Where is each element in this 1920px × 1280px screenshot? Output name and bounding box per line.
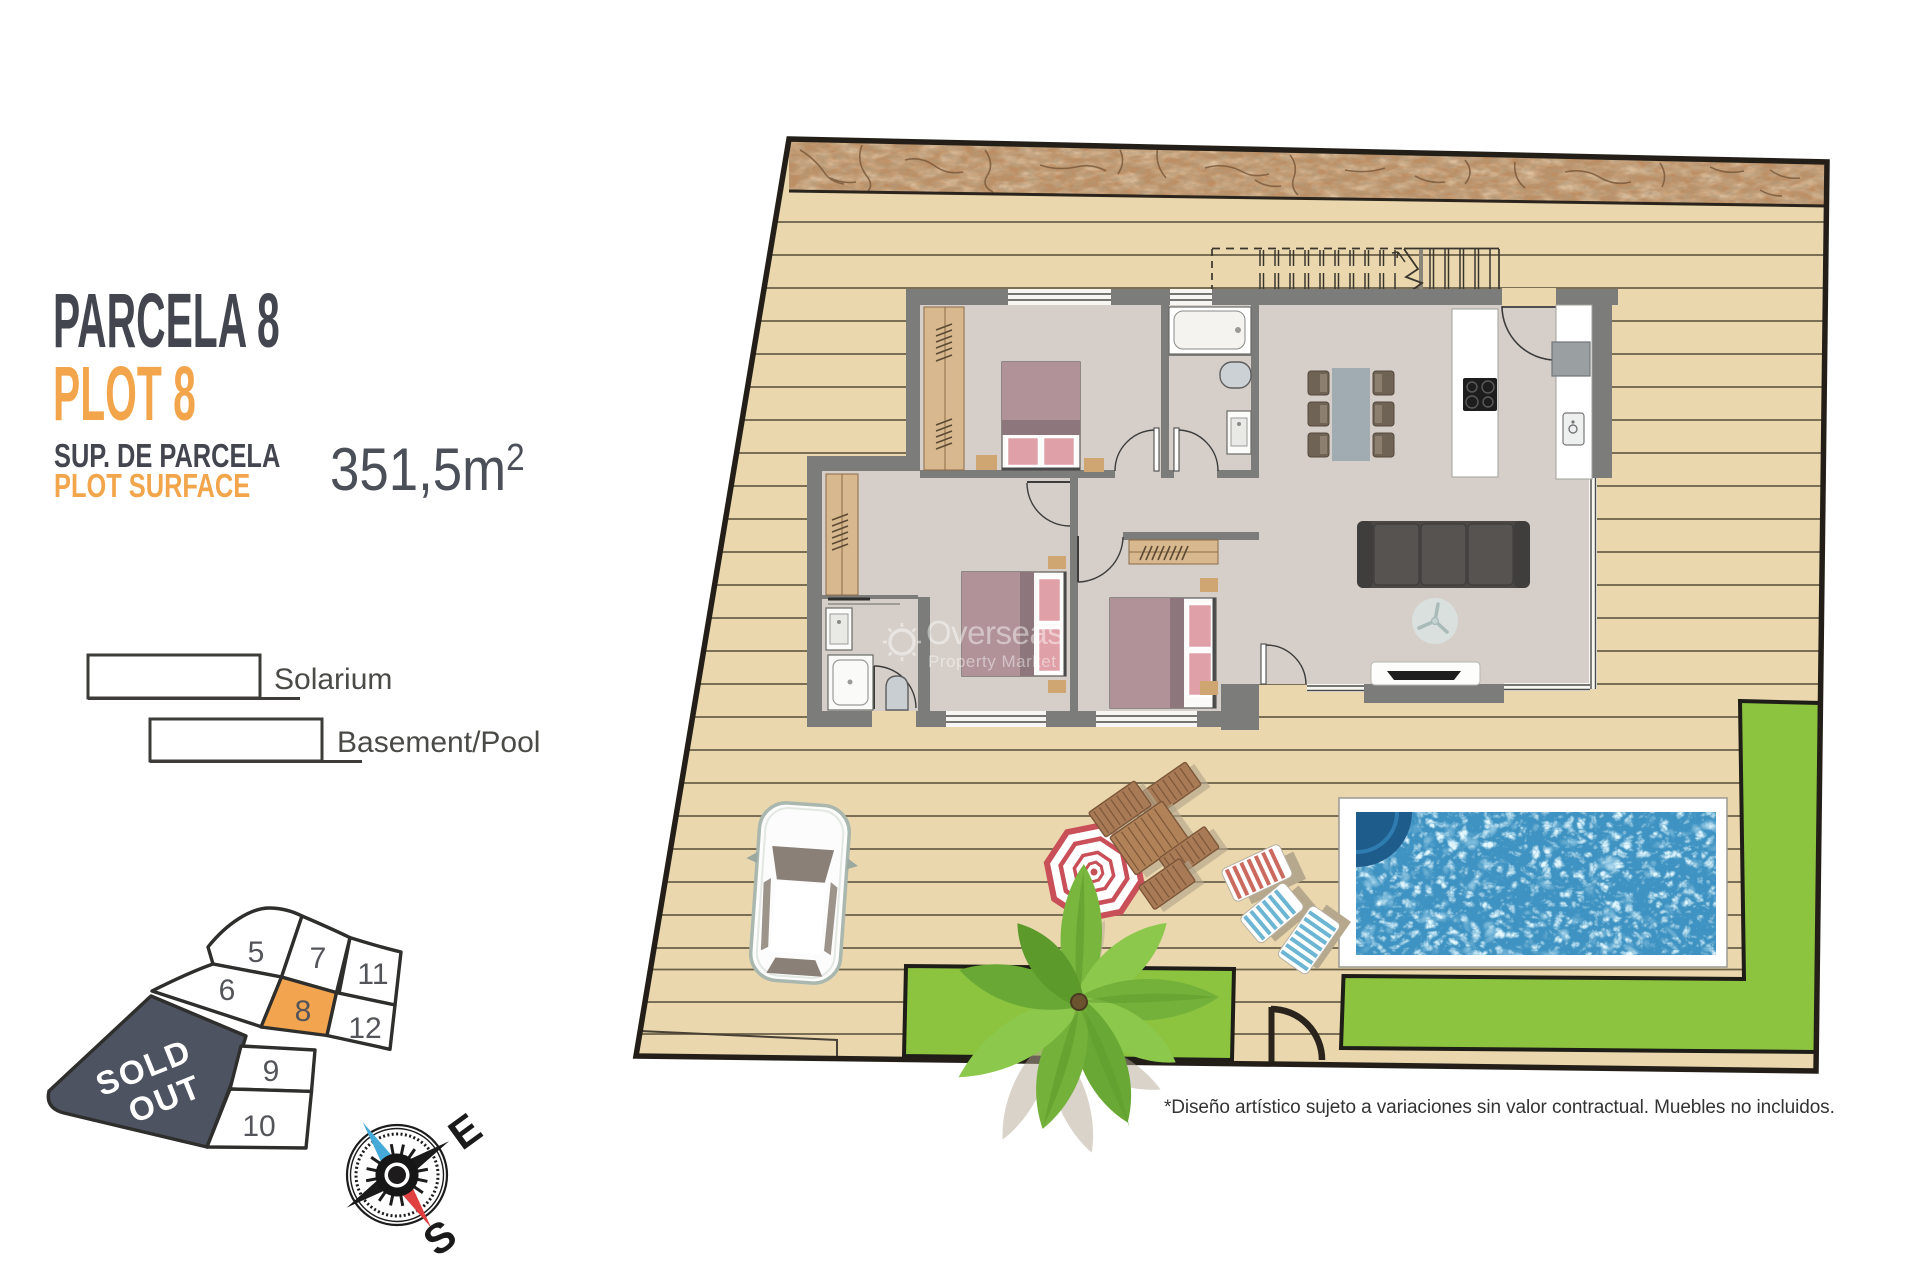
svg-text:PLOT SURFACE: PLOT SURFACE — [54, 468, 250, 505]
svg-text:Basement/Pool: Basement/Pool — [337, 726, 540, 759]
svg-text:PLOT 8: PLOT 8 — [53, 351, 196, 437]
svg-text:Overseas: Overseas — [926, 614, 1063, 651]
svg-text:*Diseño artístico sujeto a var: *Diseño artístico sujeto a variaciones s… — [1164, 1097, 1835, 1118]
svg-text:5: 5 — [248, 936, 265, 969]
svg-text:6: 6 — [219, 974, 236, 1007]
svg-text:Property Market: Property Market — [928, 652, 1056, 671]
svg-text:10: 10 — [242, 1110, 275, 1143]
svg-text:351,5m2: 351,5m2 — [330, 436, 525, 503]
svg-text:12: 12 — [348, 1012, 381, 1045]
svg-text:9: 9 — [263, 1055, 280, 1088]
svg-text:11: 11 — [357, 958, 388, 991]
svg-text:Solarium: Solarium — [274, 663, 392, 696]
svg-text:8: 8 — [295, 995, 312, 1028]
svg-text:7: 7 — [310, 942, 327, 975]
